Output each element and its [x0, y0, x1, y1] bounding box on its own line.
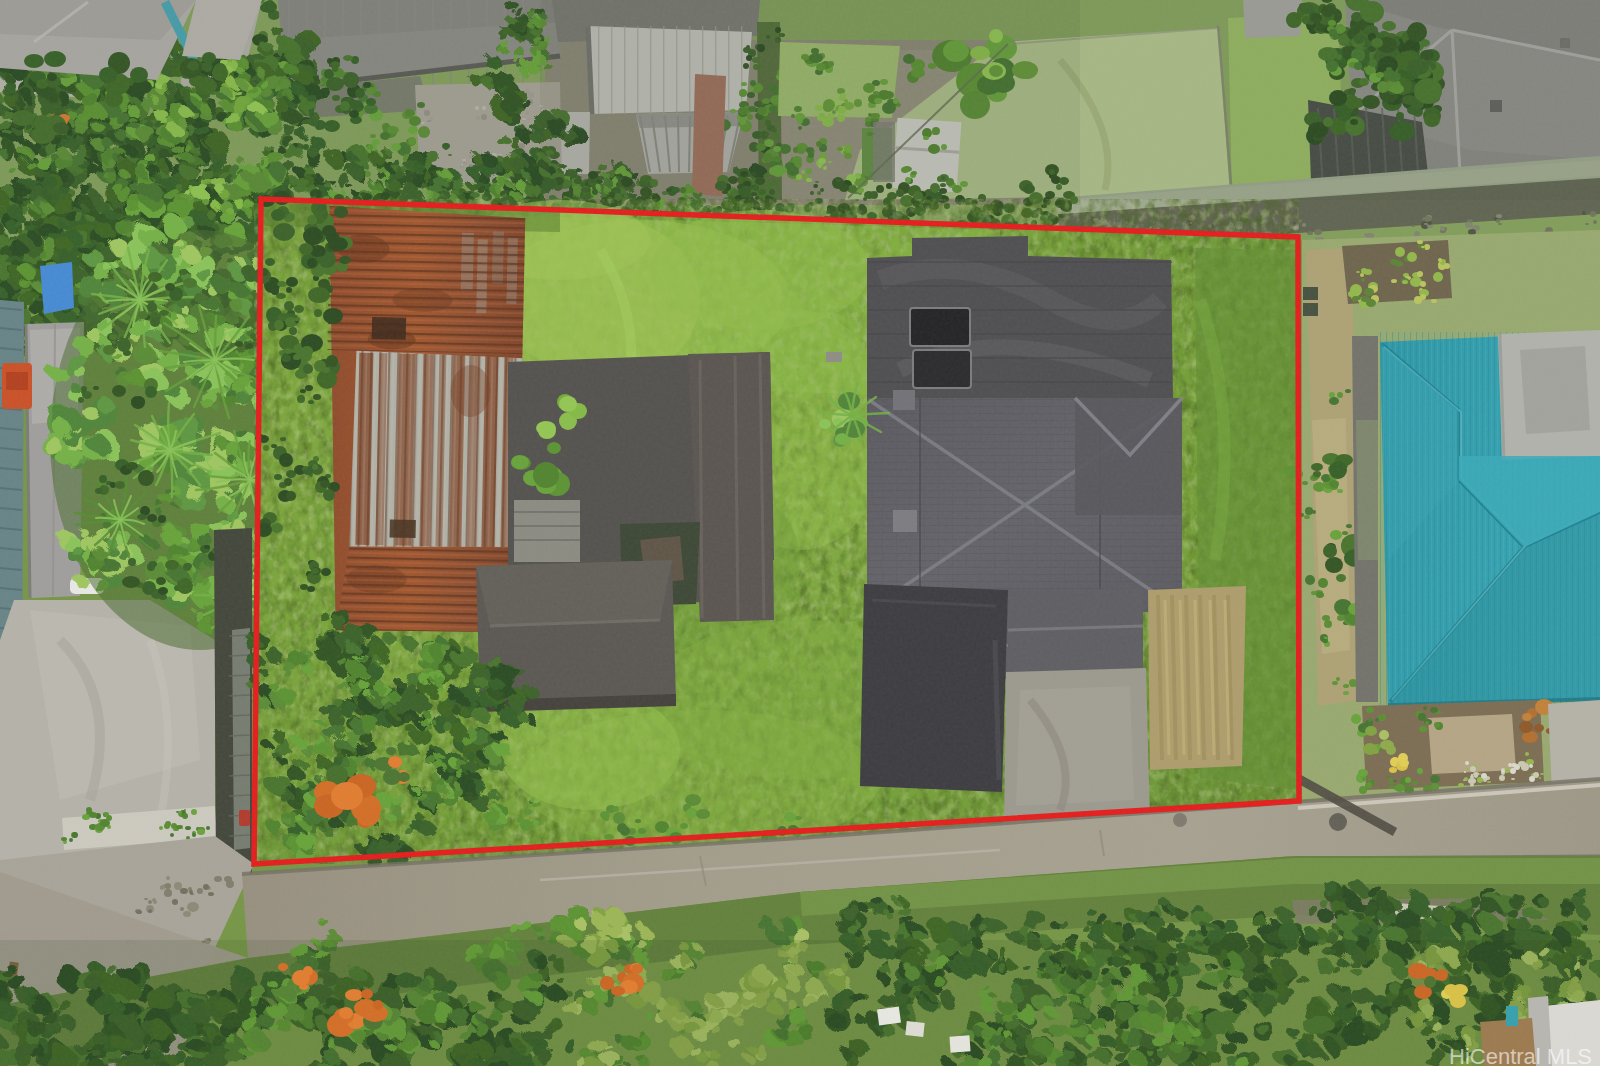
svg-text:HiCentral MLS: HiCentral MLS	[1449, 1044, 1592, 1066]
